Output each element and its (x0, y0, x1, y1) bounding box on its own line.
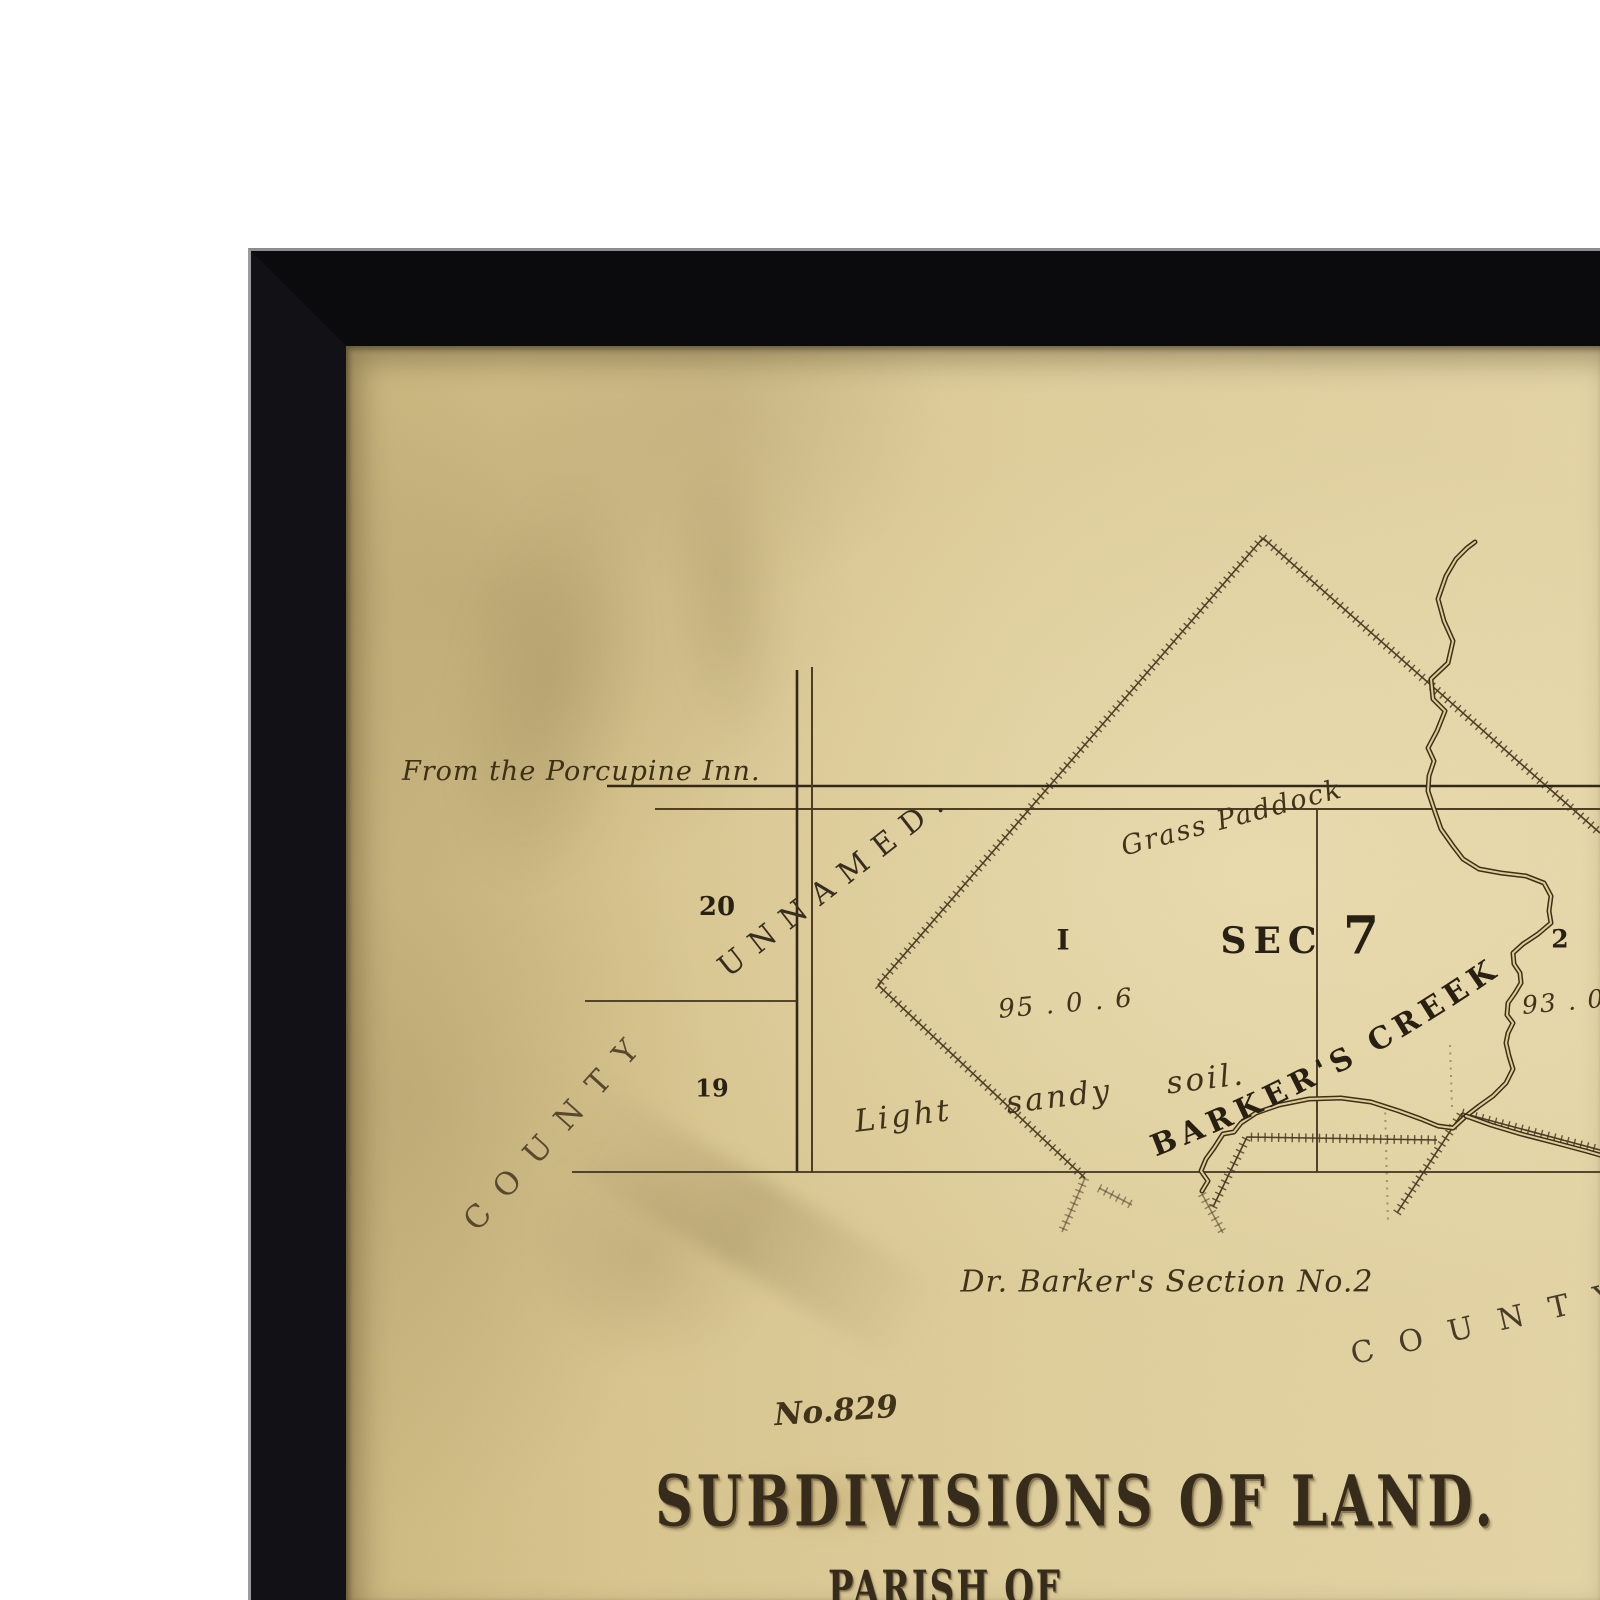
map-title: SUBDIVISIONS OF LAND. (655, 1461, 1496, 1543)
map-line-art: BARKER'S CREEK (346, 346, 1600, 1600)
label-lot-1: I (1056, 924, 1069, 957)
map-paper: BARKER'S CREEK From the Porcupine Inn. U… (346, 346, 1600, 1600)
label-lot-20: 20 (699, 892, 735, 922)
dotted-boundary (1450, 1045, 1452, 1108)
framed-map-photo: BARKER'S CREEK From the Porcupine Inn. U… (0, 0, 1600, 1600)
label-from-porcupine-inn: From the Porcupine Inn. (402, 756, 761, 787)
label-lot-19: 19 (695, 1074, 728, 1103)
map-subtitle: PARISH OF (828, 1561, 1062, 1600)
creek-name-label: BARKER'S CREEK (1146, 951, 1507, 1164)
label-sec-number: 7 (1343, 906, 1379, 967)
label-lot-2: 2 (1551, 925, 1568, 954)
dotted-boundary (1385, 1105, 1388, 1223)
label-sec: SEC (1220, 920, 1323, 962)
label-barkers-section-note: Dr. Barker's Section No.2 (961, 1265, 1374, 1300)
